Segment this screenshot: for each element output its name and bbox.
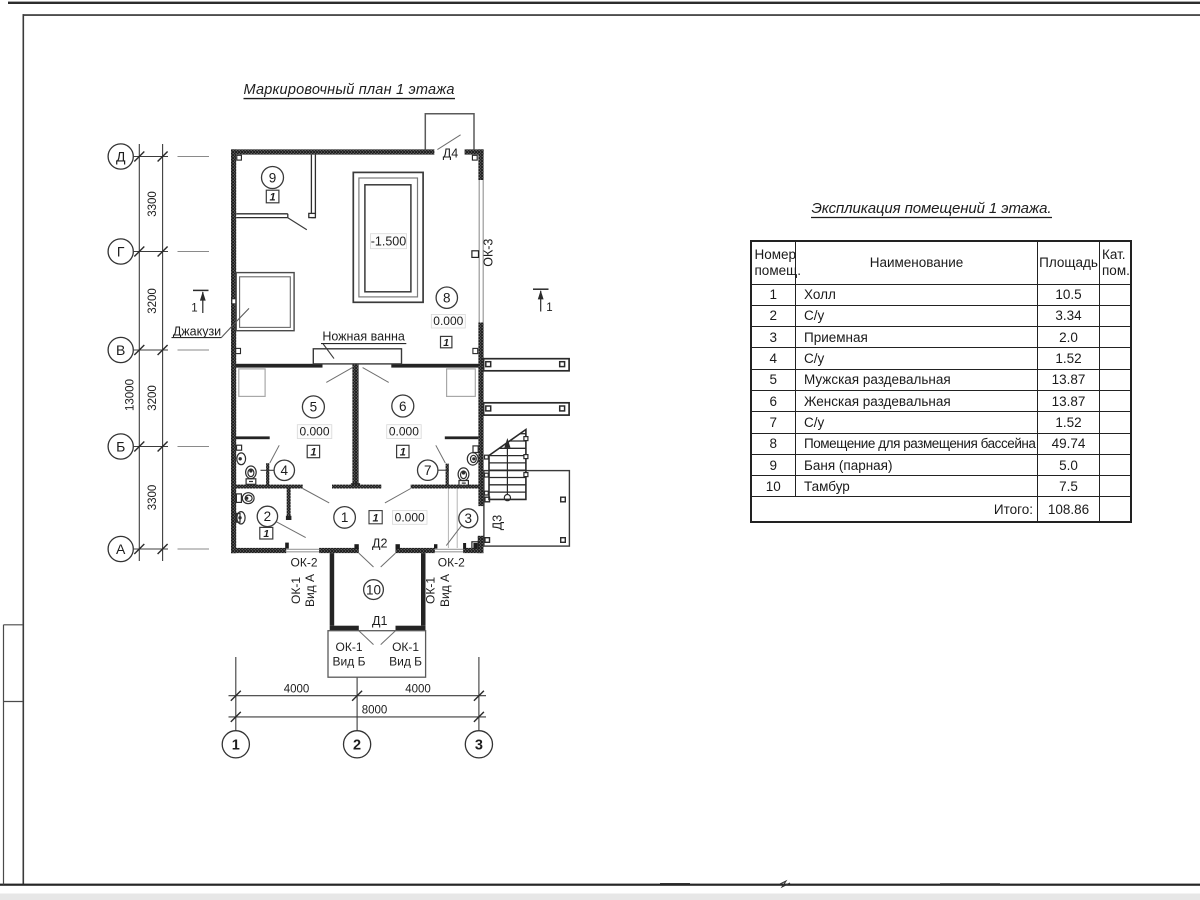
svg-text:7: 7 (424, 463, 432, 478)
svg-text:В: В (116, 342, 125, 358)
svg-text:3300: 3300 (147, 191, 159, 217)
svg-text:1: 1 (341, 510, 349, 525)
svg-text:Вид А: Вид А (303, 574, 317, 607)
svg-text:ОК-1: ОК-1 (336, 640, 363, 654)
svg-text:2: 2 (264, 509, 272, 524)
svg-text:Экспликация помещений 1 этажа.: Экспликация помещений 1 этажа. (812, 200, 1052, 217)
svg-text:10: 10 (366, 582, 381, 597)
svg-text:4: 4 (281, 463, 289, 478)
svg-text:Г: Г (117, 244, 125, 260)
svg-text:0.000: 0.000 (395, 510, 425, 524)
svg-text:Д4: Д4 (443, 147, 458, 161)
svg-text:3: 3 (475, 737, 483, 753)
svg-text:13000: 13000 (125, 379, 137, 411)
svg-text:3200: 3200 (147, 385, 159, 411)
svg-text:3200: 3200 (147, 288, 159, 314)
svg-text:3300: 3300 (147, 485, 159, 511)
svg-text:Вид Б: Вид Б (389, 654, 422, 668)
svg-text:ОК-1: ОК-1 (289, 577, 303, 604)
svg-text:3: 3 (465, 511, 473, 526)
svg-text:1: 1 (443, 337, 449, 349)
svg-text:Вид А: Вид А (438, 574, 452, 607)
svg-text:Д2: Д2 (372, 536, 387, 550)
svg-text:0.000: 0.000 (433, 314, 463, 328)
svg-text:Д1: Д1 (372, 614, 387, 628)
svg-text:ОК-1: ОК-1 (392, 640, 419, 654)
svg-text:Д3: Д3 (491, 515, 505, 530)
svg-text:Джакузи: Джакузи (173, 324, 221, 338)
svg-text:Д: Д (116, 149, 126, 165)
svg-text:6: 6 (399, 399, 407, 414)
svg-text:1: 1 (270, 192, 276, 204)
svg-text:4000: 4000 (405, 683, 431, 695)
svg-text:ОК-2: ОК-2 (438, 556, 465, 570)
svg-text:А: А (116, 541, 126, 557)
svg-text:4000: 4000 (284, 683, 310, 695)
svg-text:1: 1 (191, 303, 197, 315)
svg-text:9: 9 (269, 170, 277, 185)
svg-text:Вид Б: Вид Б (333, 654, 366, 668)
svg-text:1: 1 (373, 513, 379, 525)
svg-text:1: 1 (263, 528, 269, 540)
svg-text:8000: 8000 (362, 705, 388, 717)
svg-text:1: 1 (310, 447, 316, 459)
svg-text:1: 1 (546, 302, 552, 314)
svg-text:ОК-1: ОК-1 (424, 577, 438, 604)
svg-text:Ножная ванна: Ножная ванна (322, 329, 405, 343)
svg-text:0.000: 0.000 (299, 425, 329, 439)
svg-text:1: 1 (232, 737, 240, 753)
svg-text:0.000: 0.000 (389, 425, 419, 439)
svg-text:-1.500: -1.500 (371, 235, 406, 249)
svg-text:Маркировочный план 1 этажа: Маркировочный план 1 этажа (244, 82, 455, 98)
svg-text:ОК-2: ОК-2 (291, 556, 318, 570)
svg-text:Б: Б (116, 439, 125, 455)
svg-text:ОК-3: ОК-3 (481, 239, 495, 267)
svg-text:8: 8 (443, 291, 451, 306)
svg-text:1: 1 (400, 447, 406, 459)
svg-text:5: 5 (310, 400, 318, 415)
svg-text:2: 2 (353, 737, 361, 753)
